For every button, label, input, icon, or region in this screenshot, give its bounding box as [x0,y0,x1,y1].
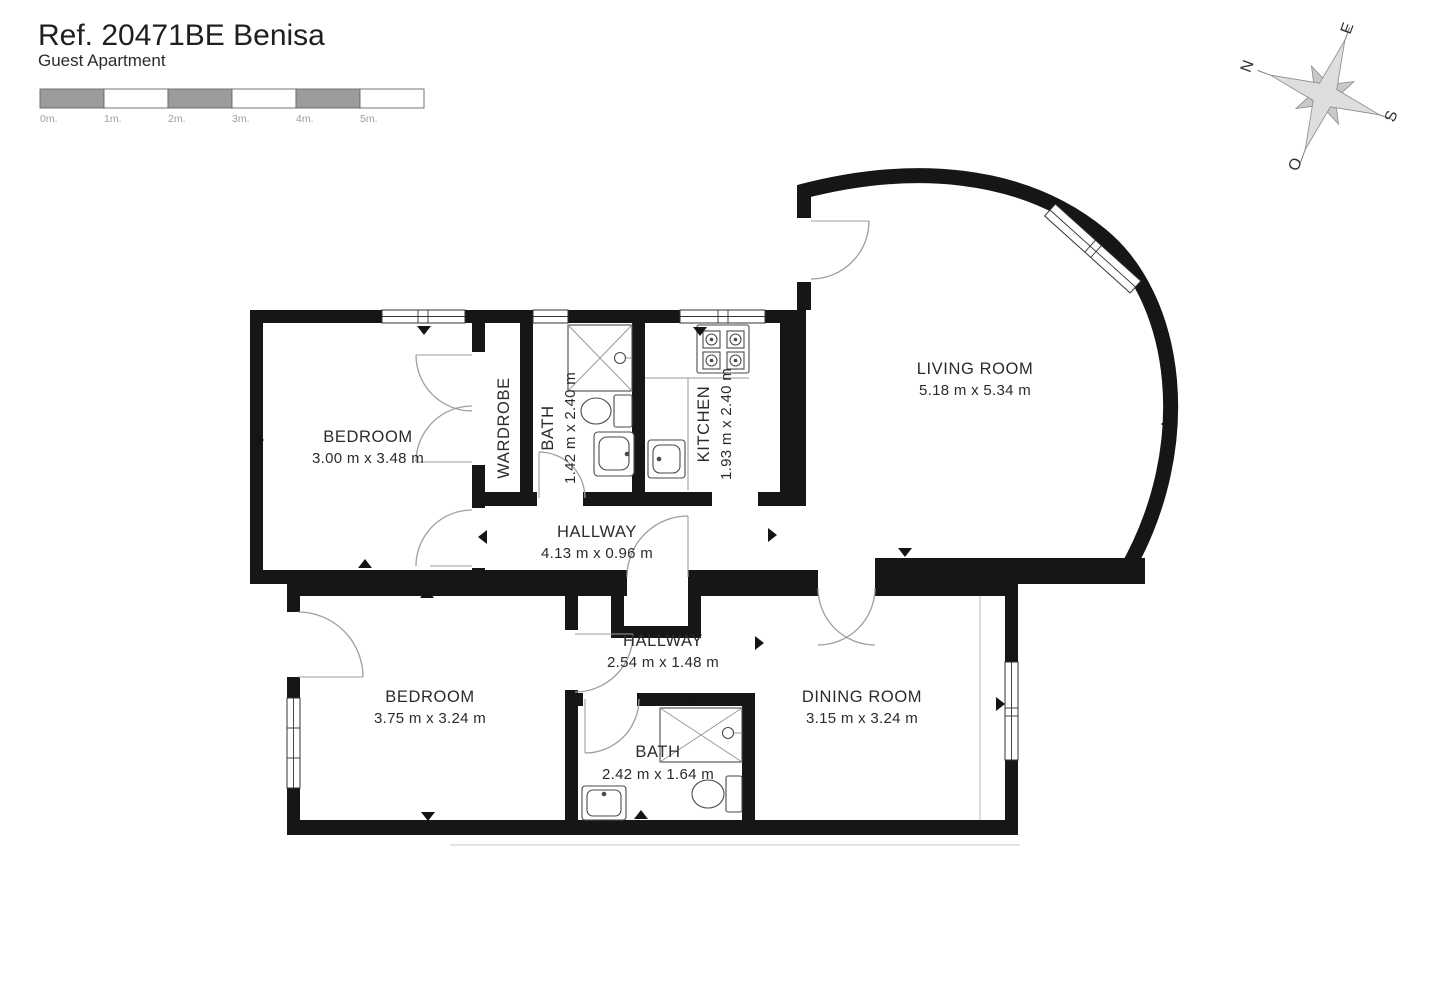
floor-plan-page: Ref. 20471BE Benisa Guest Apartment 0m. … [0,0,1440,1000]
svg-text:DINING ROOM: DINING ROOM [802,688,922,706]
door-dining-room-double [818,588,875,645]
scale-label-2: 2m. [168,113,186,125]
svg-text:1.42 m x 2.40 m: 1.42 m x 2.40 m [562,372,579,484]
scale-label-4: 4m. [296,113,314,125]
svg-text:4.13 m x 0.96 m: 4.13 m x 0.96 m [541,545,653,562]
floor-plan-canvas: Ref. 20471BE Benisa Guest Apartment 0m. … [0,0,1440,1000]
scale-label-0: 0m. [40,113,58,125]
window-bedroom2 [287,698,300,788]
window-dining-room [1005,662,1018,760]
room-label-hallway-2: HALLWAY 2.54 m x 1.48 m [607,632,719,671]
svg-text:5.18 m x 5.34 m: 5.18 m x 5.34 m [919,382,1031,399]
compass-north-label: N [1238,58,1258,75]
svg-text:BEDROOM: BEDROOM [385,688,474,706]
door-wardrobe-double [416,355,472,462]
compass-rose-icon: N E S O [1238,21,1402,174]
compass-east-label: E [1338,21,1358,37]
sink-bath1-icon [594,432,634,476]
svg-text:BEDROOM: BEDROOM [323,428,412,446]
window-living-room [1045,204,1141,293]
room-label-hallway-1: HALLWAY 4.13 m x 0.96 m [541,523,653,562]
room-label-kitchen: KITCHEN 1.93 m x 2.40 m [695,368,735,480]
door-living-room [811,221,869,279]
scale-label-5: 5m. [360,113,378,125]
svg-text:2.54 m x 1.48 m: 2.54 m x 1.48 m [607,654,719,671]
toilet-bath1-icon [581,395,632,427]
page-title: Ref. 20471BE Benisa [38,19,325,52]
door-bath2 [585,699,639,753]
room-label-bath-1: BATH 1.42 m x 2.40 m [539,372,579,484]
door-bedroom2-exterior [298,612,363,677]
svg-text:3.00 m x 3.48 m: 3.00 m x 3.48 m [312,450,424,467]
compass-south-label: S [1382,109,1402,125]
room-label-living-room: LIVING ROOM 5.18 m x 5.34 m [917,360,1034,399]
room-label-bedroom-2: BEDROOM 3.75 m x 3.24 m [374,688,486,727]
stove-icon [697,325,749,373]
room-label-dining-room: DINING ROOM 3.15 m x 3.24 m [802,688,922,727]
svg-text:HALLWAY: HALLWAY [557,523,637,541]
svg-text:BATH: BATH [539,405,557,450]
scale-label-1: 1m. [104,113,122,125]
svg-text:KITCHEN: KITCHEN [695,386,713,463]
svg-text:HALLWAY: HALLWAY [623,632,703,650]
svg-text:2.42 m x 1.64 m: 2.42 m x 1.64 m [602,766,714,783]
header: Ref. 20471BE Benisa Guest Apartment [38,19,325,70]
page-subtitle: Guest Apartment [38,51,166,70]
room-label-wardrobe: WARDROBE [495,377,513,478]
svg-text:WARDROBE: WARDROBE [495,377,513,478]
kitchen-sink-icon [648,440,685,478]
sink-bath2-icon [582,786,626,820]
svg-text:1.93 m x 2.40 m: 1.93 m x 2.40 m [718,368,735,480]
svg-text:LIVING ROOM: LIVING ROOM [917,360,1034,378]
compass-west-label: O [1286,156,1306,174]
svg-text:3.75 m x 3.24 m: 3.75 m x 3.24 m [374,710,486,727]
room-label-bedroom-1: BEDROOM 3.00 m x 3.48 m [312,428,424,467]
window-bath1 [533,310,568,323]
svg-text:BATH: BATH [635,743,680,761]
svg-text:3.15 m x 3.24 m: 3.15 m x 3.24 m [806,710,918,727]
window-bedroom1 [382,310,465,323]
window-kitchen [680,310,765,323]
scale-label-3: 3m. [232,113,250,125]
door-bedroom1 [416,510,472,566]
scale-bar: 0m. 1m. 2m. 3m. 4m. 5m. [40,89,424,125]
